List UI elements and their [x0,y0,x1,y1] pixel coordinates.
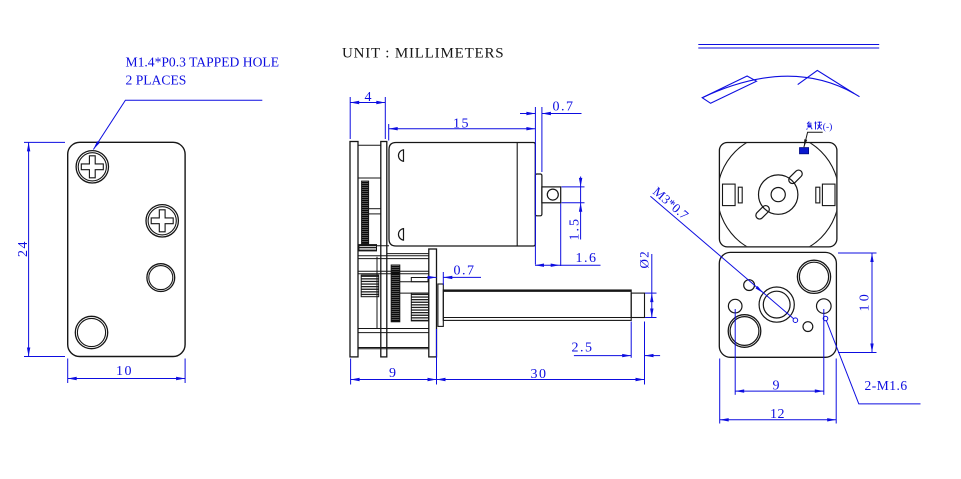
svg-text:1.5: 1.5 [568,217,583,241]
svg-text:(-): (-) [823,121,833,132]
svg-text:24: 24 [16,240,31,257]
svg-text:Ø2: Ø2 [637,250,652,268]
svg-text:2.5: 2.5 [572,341,594,356]
svg-text:9: 9 [773,379,781,394]
svg-text:0.7: 0.7 [454,264,476,279]
svg-text:30: 30 [531,367,548,382]
svg-text:2 PLACES: 2 PLACES [126,73,187,88]
svg-text:10: 10 [116,364,133,379]
svg-text:UNIT : MILLIMETERS: UNIT : MILLIMETERS [342,46,504,62]
svg-text:10: 10 [858,291,873,311]
svg-text:M1.4*P0.3 TAPPED HOLE: M1.4*P0.3 TAPPED HOLE [126,55,280,70]
svg-text:2-M1.6: 2-M1.6 [865,378,908,393]
svg-text:9: 9 [389,366,397,381]
svg-text:1.6: 1.6 [576,251,598,266]
svg-text:15: 15 [453,117,470,132]
svg-text:0.7: 0.7 [553,100,575,115]
svg-text:4: 4 [365,90,373,105]
svg-text:12: 12 [770,407,785,422]
